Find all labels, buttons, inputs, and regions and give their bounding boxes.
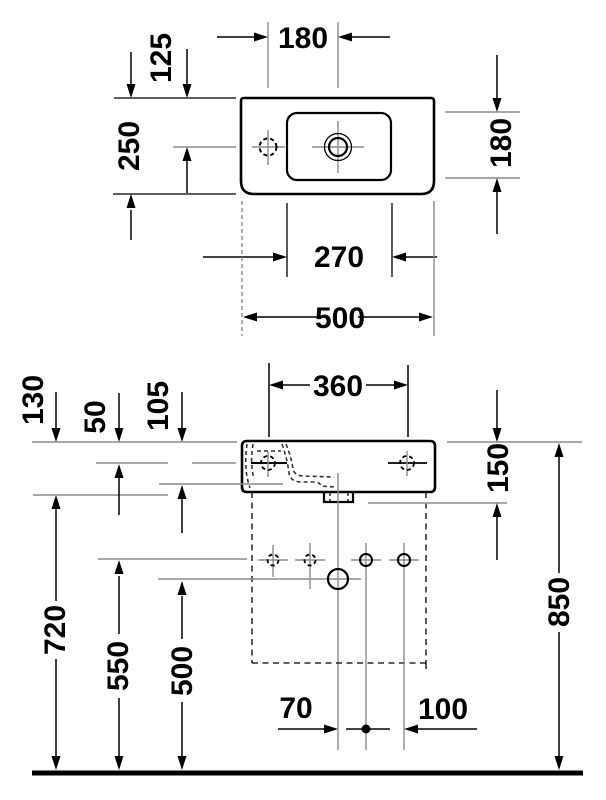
- dim-label-bowl-depth: 180: [485, 118, 518, 168]
- plan-dim-bowl-depth: 180: [445, 55, 520, 234]
- front-dim-height-and-underside: 130 720: [17, 375, 72, 770]
- plan-faucet-hole: [252, 130, 285, 165]
- dim-label-overall-depth: 250: [113, 121, 146, 171]
- dim-label-supply-height: 550: [102, 641, 135, 691]
- front-dim-rim-height: 850: [543, 443, 576, 770]
- dim-label-tap-from-back: 125: [145, 33, 178, 83]
- plan-drain-hole: [312, 121, 364, 173]
- front-dim-fixing-spacing: 360: [269, 363, 408, 437]
- dim-label-bowl-inside-depth: 105: [142, 381, 175, 431]
- dim-label-waste-height: 500: [166, 646, 199, 696]
- plan-view: 180 125 250 180: [113, 22, 520, 336]
- front-view: 360 130 720 50 550 105: [17, 363, 583, 773]
- front-fixing-hole-left: [251, 452, 287, 477]
- dim-label-underside-height: 720: [39, 605, 72, 655]
- dim-label-tap-to-drain: 180: [278, 22, 328, 55]
- dim-label-rim-to-outlet: 150: [482, 443, 515, 493]
- front-installation-zone: [252, 492, 426, 670]
- dim-label-body-height: 130: [17, 375, 50, 425]
- plan-dim-bowl-width: 270: [203, 203, 437, 277]
- front-fixing-hole-right: [388, 451, 427, 476]
- dim-label-overall-width: 500: [315, 302, 365, 335]
- front-dim-fixing-and-supply: 50 550: [79, 393, 135, 770]
- dim-label-fixing-spacing: 360: [313, 370, 363, 403]
- plan-dim-tap-from-back: 125: [145, 33, 192, 193]
- front-dim-rim-to-outlet: 150: [482, 390, 515, 560]
- drain-offset-reference-dot: [362, 725, 371, 734]
- dim-label-rim-height: 850: [543, 577, 576, 627]
- front-dim-drain-offsets: 70 100: [278, 692, 477, 734]
- plan-dim-tap-to-drain: 180: [217, 22, 390, 88]
- dim-label-drain-offset-right: 100: [418, 693, 468, 726]
- technical-drawing-canvas: 180 125 250 180: [0, 0, 606, 800]
- dim-label-bowl-width: 270: [314, 241, 364, 274]
- dim-label-fixing-from-rim: 50: [79, 400, 112, 433]
- plan-dim-overall-depth: 250: [113, 52, 146, 240]
- front-dim-bowl-depth-and-waste: 105 500: [142, 381, 199, 770]
- drawing-page: 180 125 250 180: [0, 0, 606, 800]
- dim-label-drain-offset-left: 70: [279, 692, 312, 725]
